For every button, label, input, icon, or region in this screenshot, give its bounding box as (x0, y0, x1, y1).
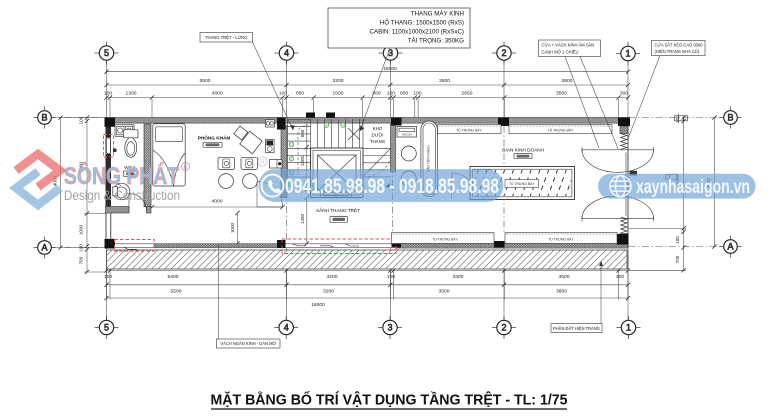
svg-text:MẶT BẰNG BỐ TRÍ VẬT DỤNG TẦNG: MẶT BẰNG BỐ TRÍ VẬT DỤNG TẦNG TRỆT - TL:… (211, 391, 569, 409)
svg-text:NGOAI: NGOAI (402, 132, 412, 136)
svg-text:THANG: THANG (370, 139, 386, 144)
svg-text:100: 100 (387, 274, 395, 280)
svg-text:Design & Construction: Design & Construction (64, 188, 180, 203)
svg-text:CÁNH MỞ 2 CHIỀU: CÁNH MỞ 2 CHIỀU (542, 50, 579, 55)
svg-text:1300: 1300 (300, 155, 305, 166)
svg-text:CỬA + VÁCH KÍNH ÂM SÀN: CỬA + VÁCH KÍNH ÂM SÀN (542, 43, 595, 48)
svg-text:3500: 3500 (439, 78, 450, 84)
svg-text:1: 1 (626, 323, 631, 333)
svg-text:0941.85.98.98 - 0918.85.98.98: 0941.85.98.98 - 0918.85.98.98 (285, 175, 499, 198)
svg-text:1500: 1500 (333, 91, 344, 97)
svg-text:B: B (41, 113, 47, 123)
svg-text:2650: 2650 (462, 91, 473, 97)
svg-text:TẢI TRỌNG: 350KG: TẢI TRỌNG: 350KG (408, 38, 464, 45)
svg-text:650: 650 (400, 91, 408, 97)
svg-text:4000: 4000 (212, 199, 223, 205)
svg-text:1000: 1000 (78, 224, 83, 235)
svg-text:TỦ TRƯNG BÀY: TỦ TRƯNG BÀY (509, 181, 535, 186)
svg-text:16000: 16000 (383, 66, 397, 72)
svg-text:100: 100 (104, 91, 112, 97)
svg-text:THANG TRỆT - LỬNG: THANG TRỆT - LỬNG (205, 35, 248, 40)
svg-text:5500: 5500 (171, 288, 182, 294)
svg-text:3500: 3500 (439, 288, 450, 294)
svg-text:5: 5 (104, 48, 109, 58)
svg-text:16000: 16000 (311, 302, 325, 308)
svg-text:2: 2 (501, 48, 506, 58)
svg-text:4: 4 (284, 48, 289, 58)
svg-text:5: 5 (104, 323, 109, 333)
svg-text:860: 860 (300, 129, 305, 137)
svg-text:300: 300 (620, 91, 628, 97)
svg-text:CABIN: 1100x1000x2100 (RxSxC): CABIN: 1100x1000x2100 (RxSxC) (370, 29, 464, 36)
svg-text:2: 2 (501, 323, 506, 333)
svg-text:100: 100 (387, 91, 395, 97)
svg-text:R: R (260, 159, 265, 166)
svg-text:3800: 3800 (556, 288, 567, 294)
svg-text:700: 700 (78, 256, 83, 264)
svg-text:A: A (727, 242, 733, 252)
svg-text:CỬA SẮT KÉO CAO 3300: CỬA SẮT KÉO CAO 3300 (655, 43, 704, 48)
svg-text:PHẦN ĐẤT HIỆN TRANG: PHẦN ĐẤT HIỆN TRANG (553, 326, 600, 331)
svg-text:1450: 1450 (300, 213, 305, 224)
svg-text:850: 850 (296, 91, 304, 97)
svg-text:DƯỚI: DƯỚI (372, 133, 384, 138)
svg-text:R: R (183, 165, 187, 171)
svg-text:1: 1 (625, 49, 630, 59)
svg-text:5500: 5500 (200, 78, 211, 84)
svg-text:100: 100 (104, 274, 112, 280)
svg-text:GIAN KINH DOANH: GIAN KINH DOANH (502, 147, 544, 152)
svg-text:3200: 3200 (323, 288, 334, 294)
svg-text:3: 3 (388, 48, 393, 58)
svg-text:KHO: KHO (373, 126, 383, 131)
svg-text:100: 100 (413, 91, 421, 97)
svg-text:HỐ THANG: 1500x1500 (RxS): HỐ THANG: 1500x1500 (RxS) (380, 20, 464, 27)
svg-text:1300: 1300 (126, 91, 137, 97)
svg-text:TỦ TRƯNG BÀY: TỦ TRƯNG BÀY (548, 236, 574, 241)
svg-text:3500: 3500 (556, 91, 567, 97)
svg-text:1000: 1000 (230, 222, 235, 233)
svg-text:3: 3 (387, 323, 392, 333)
svg-text:3200: 3200 (327, 274, 338, 280)
svg-text:3200: 3200 (333, 78, 344, 84)
svg-text:xaynhasaigon.vn: xaynhasaigon.vn (636, 176, 750, 198)
svg-text:4: 4 (284, 323, 289, 333)
svg-text:TỦ TRƯNG BÀY: TỦ TRƯNG BÀY (456, 128, 482, 133)
svg-text:300: 300 (616, 274, 624, 280)
svg-text:700: 700 (675, 255, 680, 263)
svg-text:THANG MÁY KÍNH: THANG MÁY KÍNH (411, 11, 464, 18)
svg-text:100: 100 (279, 91, 287, 97)
svg-text:A: A (41, 243, 47, 253)
svg-text:(HIỆN TRANG NHÀ CŨ): (HIỆN TRANG NHÀ CŨ) (655, 49, 700, 54)
svg-text:BÀN TIẾP KHÁCH: BÀN TIẾP KHÁCH (426, 145, 431, 172)
svg-text:5400: 5400 (168, 274, 179, 280)
svg-text:B: B (727, 113, 733, 123)
svg-text:SẢNH THANG TRỆT: SẢNH THANG TRỆT (316, 206, 360, 213)
svg-text:3800: 3800 (562, 78, 573, 84)
svg-text:3500: 3500 (559, 274, 570, 280)
svg-text:PHÒNG KHÁM: PHÒNG KHÁM (198, 133, 231, 140)
svg-text:VÁCH NGĂN KÍNH - DÁN MỜ: VÁCH NGĂN KÍNH - DÁN MỜ (220, 341, 276, 346)
svg-text:SÔNG PHÁT: SÔNG PHÁT (64, 162, 179, 190)
svg-text:100: 100 (78, 244, 83, 252)
svg-text:3400: 3400 (453, 274, 464, 280)
svg-text:TỦ TRƯNG BÀY: TỦ TRƯNG BÀY (432, 236, 458, 241)
svg-text:100: 100 (675, 236, 680, 244)
svg-text:4000: 4000 (212, 91, 223, 97)
svg-text:TỦ TRƯNG BÀY: TỦ TRƯNG BÀY (548, 128, 574, 133)
